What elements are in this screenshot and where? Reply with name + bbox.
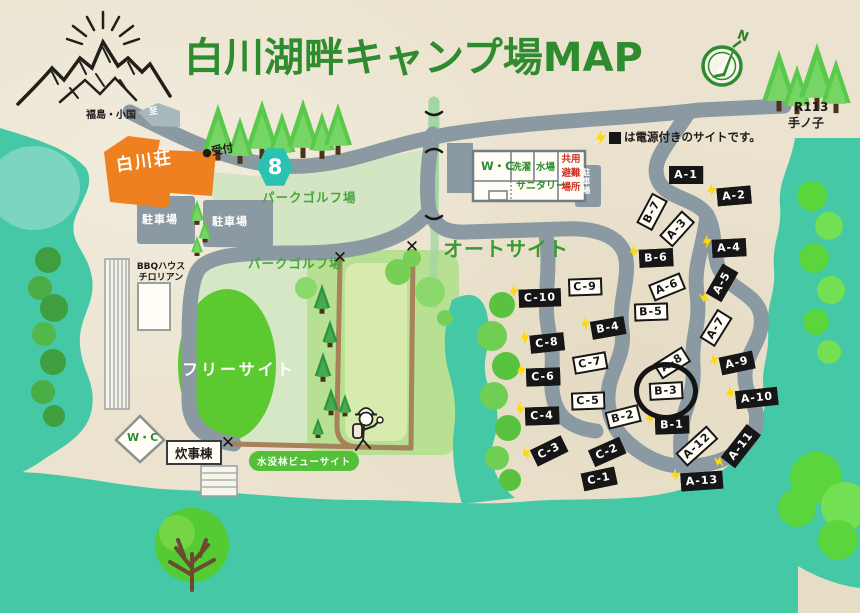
power-bolt-icon	[520, 330, 530, 345]
site-badge-C-7: C-7	[572, 351, 608, 375]
power-bolt-icon	[696, 290, 713, 305]
power-bolt-icon	[509, 284, 518, 298]
site-badge-C-5: C-5	[571, 391, 605, 410]
power-bolt-icon	[516, 402, 525, 416]
site-badge-B-6: B-6	[639, 248, 674, 268]
site-badge-C-2: C-2	[588, 437, 626, 467]
power-bolt-icon	[671, 468, 681, 483]
site-badge-A-7: A-7	[699, 309, 732, 347]
site-badge-C-6: C-6	[526, 367, 560, 386]
power-bolt-icon	[519, 445, 533, 462]
power-bolt-icon	[709, 352, 721, 368]
site-badge-C-1: C-1	[581, 467, 618, 492]
site-badge-B-3: B-3	[649, 381, 684, 401]
site-badge-C-8: C-8	[529, 332, 564, 353]
campground-map: 白川湖畔キャンプ場MAP N 福島・小国 至 R113 手ノ子 8 は電源付きの…	[0, 0, 860, 613]
site-badge-A-4: A-4	[712, 238, 747, 258]
site-badge-C-3: C-3	[530, 436, 568, 467]
site-badge-B-7: B-7	[636, 193, 668, 231]
site-badge-A-1: A-1	[669, 166, 703, 184]
site-badge-A-9: A-9	[719, 351, 756, 376]
site-badge-A-11: A-11	[721, 424, 761, 468]
site-badge-A-8: A-8	[653, 346, 691, 379]
site-badge-C-9: C-9	[568, 277, 602, 296]
site-badge-A-3: A-3	[659, 210, 695, 247]
site-badge-B-2: B-2	[605, 404, 642, 430]
power-bolt-icon	[646, 411, 655, 425]
power-bolt-icon	[629, 244, 639, 258]
site-badge-A-2: A-2	[716, 186, 751, 207]
power-bolt-icon	[711, 453, 728, 469]
site-badge-C-4: C-4	[525, 406, 559, 425]
site-badge-A-5: A-5	[706, 264, 738, 302]
power-bolt-icon	[517, 363, 526, 377]
power-bolt-icon	[702, 234, 712, 248]
power-bolt-icon	[707, 183, 717, 198]
site-badge-B-1: B-1	[655, 415, 689, 434]
site-badge-A-10: A-10	[735, 387, 779, 409]
site-badge-A-6: A-6	[648, 272, 686, 301]
power-bolt-icon	[725, 385, 735, 400]
site-badge-B-5: B-5	[634, 302, 668, 321]
site-badge-C-10: C-10	[519, 288, 562, 307]
power-bolt-icon	[580, 316, 591, 331]
site-badge-A-13: A-13	[680, 471, 724, 492]
site-badges-layer: A-1A-2B-7A-3A-4B-6A-6A-5B-5A-7C-9C-10B-4…	[0, 0, 860, 613]
site-badge-B-4: B-4	[590, 316, 626, 340]
